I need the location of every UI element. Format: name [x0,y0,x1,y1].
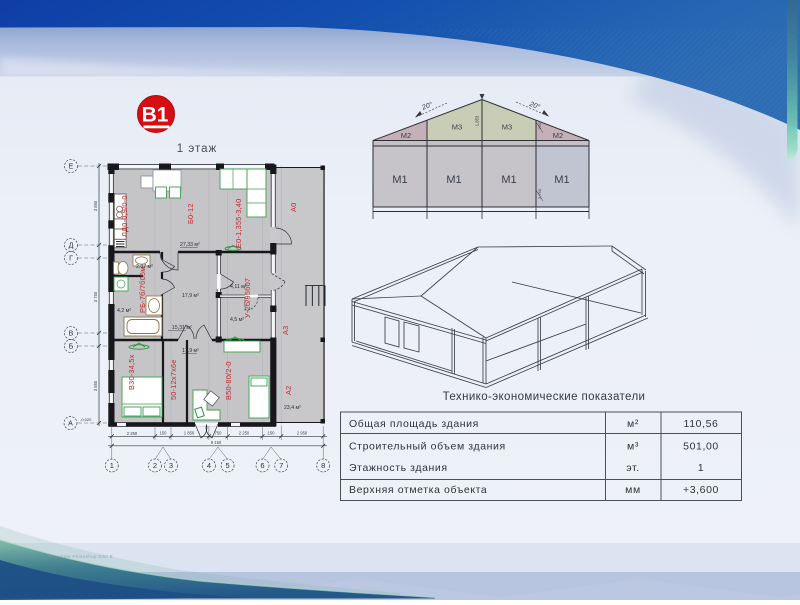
svg-text:А2: А2 [284,386,293,395]
svg-text:8: 8 [321,461,325,470]
svg-text:4,2 м²: 4,2 м² [117,308,131,314]
svg-text:М2: М2 [401,131,411,140]
svg-text:17,9 м²: 17,9 м² [182,348,199,354]
svg-text:А3: А3 [281,326,290,335]
svg-text:110,56: 110,56 [684,418,719,430]
svg-text:МГ Adobe Photoshop 3/50 В: МГ Adobe Photoshop 3/50 В [48,554,113,559]
svg-text:А: А [68,421,73,428]
svg-text:Технико-экономические показате: Технико-экономические показатели [443,391,646,403]
svg-text:5: 5 [226,461,230,470]
svg-text:эт.: эт. [626,462,640,474]
svg-text:Г: Г [69,256,73,263]
svg-text:3: 3 [169,461,173,470]
svg-text:Верхняя отметка объекта: Верхняя отметка объекта [349,484,487,496]
svg-text:М1: М1 [501,174,516,186]
svg-text:1: 1 [110,461,114,470]
svg-text:50-12х7х6е: 50-12х7х6е [169,359,178,400]
svg-text:250: 250 [537,122,542,129]
svg-text:4,5 м²: 4,5 м² [230,317,244,323]
svg-text:2: 2 [153,461,157,470]
svg-text:Е: Е [69,164,74,171]
svg-text:м²: м² [627,418,639,430]
svg-text:501,00: 501,00 [683,441,719,453]
svg-text:М1: М1 [446,174,461,186]
svg-text:2 250: 2 250 [239,431,250,436]
svg-text:3 850: 3 850 [93,200,98,211]
svg-text:Б0-12: Б0-12 [186,203,195,224]
svg-text:М3: М3 [452,123,462,132]
svg-text:М1: М1 [392,174,407,186]
svg-text:150: 150 [268,431,276,436]
svg-text:3 850: 3 850 [93,380,98,391]
svg-text:23,4 м²: 23,4 м² [284,405,301,411]
svg-text:Общая площадь здания: Общая площадь здания [349,418,479,430]
svg-text:7: 7 [279,461,283,470]
svg-text:В30-34,5х: В30-34,5х [127,354,136,390]
svg-text:РБ-7б/7б05м: РБ-7б/7б05м [138,267,147,313]
svg-text:4: 4 [207,461,211,470]
svg-text:ЛД0-0,9/0-0: ЛД0-0,9/0-0 [120,195,129,237]
svg-text:Этажность здания: Этажность здания [349,462,448,474]
svg-text:B1: B1 [142,104,169,127]
svg-text:мм: мм [625,484,641,496]
svg-text:17,9 м²: 17,9 м² [182,293,199,299]
svg-text:1: 1 [698,462,704,474]
svg-text:150: 150 [160,431,168,436]
svg-text:2 950: 2 950 [297,431,308,436]
svg-text:В: В [69,331,74,338]
svg-text:2 250: 2 250 [127,431,138,436]
svg-text:Строительный объем здания: Строительный объем здания [349,441,506,453]
svg-text:27,33 м²: 27,33 м² [180,242,200,248]
svg-text:6: 6 [260,461,264,470]
svg-text:1,853: 1,853 [475,115,480,126]
svg-text:9 150: 9 150 [211,440,222,445]
svg-text:2,07 м²: 2,07 м² [136,264,153,270]
svg-text:Е0-1,355-3,40: Е0-1,355-3,40 [234,199,243,248]
svg-text:750: 750 [215,431,223,436]
svg-text:М2: М2 [553,131,563,140]
svg-text:+3,600: +3,600 [683,484,719,496]
svg-text:В50-80/2-0: В50-80/2-0 [224,361,233,400]
svg-text:1 этаж: 1 этаж [177,143,217,155]
svg-text:2,750: 2,750 [537,188,542,199]
svg-text:М3: М3 [502,123,512,132]
svg-text:М1: М1 [554,174,569,186]
svg-text:-0,020: -0,020 [80,417,92,422]
svg-text:15,31 м²: 15,31 м² [172,325,192,331]
svg-text:м³: м³ [627,441,639,453]
svg-text:А0: А0 [289,203,298,212]
svg-text:4,11 м²: 4,11 м² [230,284,247,290]
svg-text:3 750: 3 750 [93,291,98,302]
svg-text:1 850: 1 850 [184,431,195,436]
svg-text:Д: Д [69,243,74,250]
svg-text:Б: Б [69,344,74,351]
